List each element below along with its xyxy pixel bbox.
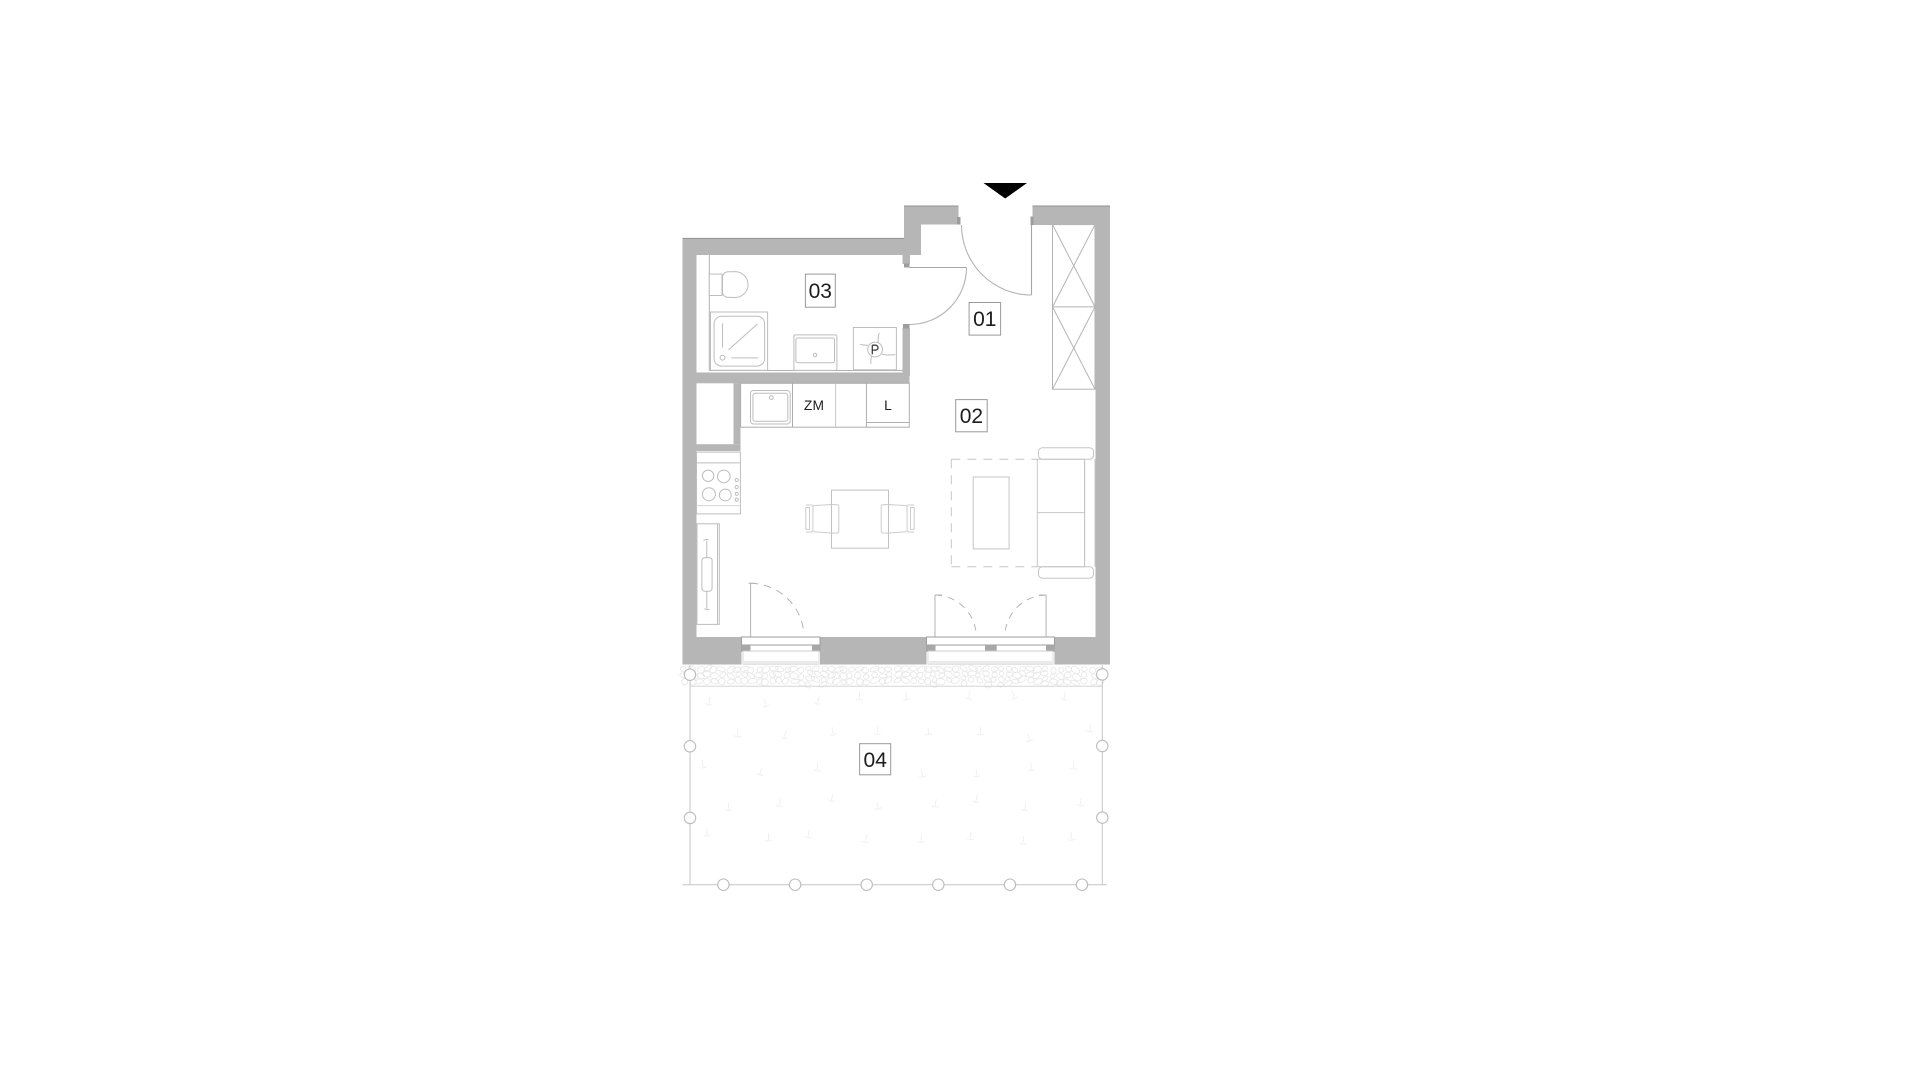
- svg-text:03: 03: [809, 280, 832, 303]
- svg-text:01: 01: [973, 308, 996, 331]
- svg-text:04: 04: [864, 749, 888, 772]
- svg-text:02: 02: [960, 405, 983, 428]
- svg-text:L: L: [884, 398, 892, 413]
- svg-text:ZM: ZM: [804, 398, 824, 413]
